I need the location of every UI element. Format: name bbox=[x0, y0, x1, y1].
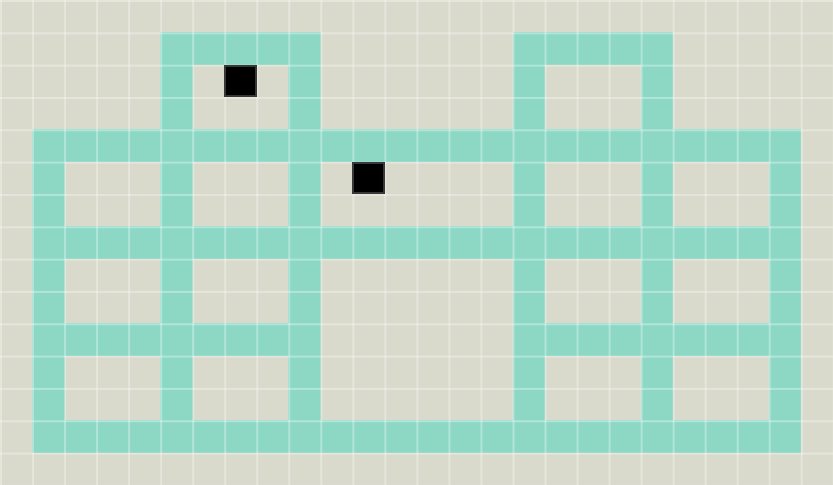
wall-tile bbox=[32, 129, 65, 162]
wall-tile bbox=[32, 259, 65, 292]
wall-tile bbox=[192, 32, 225, 65]
wall-tile bbox=[513, 129, 546, 162]
wall-tile bbox=[737, 323, 770, 356]
wall-tile bbox=[128, 323, 161, 356]
wall-tile bbox=[513, 259, 546, 292]
wall-tile bbox=[192, 226, 225, 259]
wall-tile bbox=[545, 323, 578, 356]
wall-tile bbox=[160, 291, 193, 324]
wall-tile bbox=[32, 420, 65, 453]
wall-tile bbox=[513, 97, 546, 130]
wall-tile bbox=[160, 420, 193, 453]
wall-tile bbox=[32, 226, 65, 259]
wall-tile bbox=[513, 420, 546, 453]
wall-tile bbox=[320, 420, 353, 453]
wall-tile bbox=[320, 226, 353, 259]
wall-tile bbox=[224, 323, 257, 356]
wall-tile bbox=[256, 32, 289, 65]
wall-tile bbox=[737, 129, 770, 162]
wall-tile bbox=[192, 420, 225, 453]
wall-tile bbox=[705, 226, 738, 259]
wall-tile bbox=[769, 291, 802, 324]
wall-tile bbox=[96, 226, 129, 259]
wall-tile bbox=[160, 226, 193, 259]
wall-tile bbox=[160, 129, 193, 162]
wall-tile bbox=[673, 226, 706, 259]
wall-tile bbox=[673, 129, 706, 162]
wall-tile bbox=[128, 129, 161, 162]
wall-tile bbox=[513, 194, 546, 227]
wall-tile bbox=[288, 97, 321, 130]
wall-tile bbox=[513, 388, 546, 421]
wall-tile bbox=[352, 420, 385, 453]
wall-tile bbox=[288, 194, 321, 227]
wall-tile bbox=[384, 226, 417, 259]
wall-tile bbox=[513, 32, 546, 65]
wall-tile bbox=[352, 129, 385, 162]
wall-tile bbox=[545, 420, 578, 453]
wall-tile bbox=[641, 226, 674, 259]
wall-tile bbox=[160, 32, 193, 65]
wall-tile bbox=[224, 129, 257, 162]
wall-tile bbox=[609, 129, 642, 162]
wall-tile bbox=[513, 226, 546, 259]
wall-tile bbox=[769, 323, 802, 356]
wall-tile bbox=[160, 65, 193, 98]
wall-tile bbox=[417, 226, 450, 259]
wall-tile bbox=[641, 259, 674, 292]
wall-tile bbox=[320, 129, 353, 162]
wall-tile bbox=[256, 420, 289, 453]
wall-tile bbox=[769, 388, 802, 421]
wall-tile bbox=[128, 420, 161, 453]
wall-tile bbox=[288, 65, 321, 98]
wall-tile bbox=[256, 323, 289, 356]
wall-tile bbox=[641, 388, 674, 421]
wall-tile bbox=[288, 129, 321, 162]
wall-tile bbox=[577, 420, 610, 453]
wall-tile bbox=[288, 388, 321, 421]
wall-tile bbox=[288, 356, 321, 389]
wall-tile bbox=[449, 226, 482, 259]
wall-tile bbox=[32, 323, 65, 356]
wall-tile bbox=[160, 97, 193, 130]
wall-tile bbox=[769, 356, 802, 389]
game-board bbox=[0, 0, 833, 485]
wall-tile bbox=[64, 420, 97, 453]
wall-tile bbox=[32, 162, 65, 195]
wall-tile bbox=[513, 356, 546, 389]
wall-tile bbox=[192, 323, 225, 356]
wall-tile bbox=[481, 226, 514, 259]
wall-tile bbox=[769, 129, 802, 162]
wall-tile bbox=[32, 291, 65, 324]
wall-tile bbox=[224, 420, 257, 453]
wall-tile bbox=[32, 388, 65, 421]
wall-tile bbox=[705, 420, 738, 453]
wall-tile bbox=[641, 65, 674, 98]
wall-tile bbox=[160, 259, 193, 292]
wall-tile bbox=[705, 323, 738, 356]
wall-tile bbox=[641, 420, 674, 453]
wall-tile bbox=[609, 32, 642, 65]
wall-tile bbox=[449, 129, 482, 162]
wall-tile bbox=[352, 226, 385, 259]
wall-tile bbox=[449, 420, 482, 453]
wall-tile bbox=[609, 323, 642, 356]
wall-tile bbox=[545, 226, 578, 259]
wall-tile bbox=[769, 420, 802, 453]
wall-tile bbox=[256, 129, 289, 162]
wall-tile bbox=[545, 129, 578, 162]
black-block[interactable] bbox=[352, 162, 385, 195]
wall-tile bbox=[673, 420, 706, 453]
wall-tile bbox=[641, 323, 674, 356]
wall-tile bbox=[769, 194, 802, 227]
wall-tile bbox=[96, 323, 129, 356]
wall-tile bbox=[160, 356, 193, 389]
wall-tile bbox=[769, 162, 802, 195]
wall-tile bbox=[288, 291, 321, 324]
wall-tile bbox=[577, 323, 610, 356]
wall-tile bbox=[641, 32, 674, 65]
wall-tile bbox=[513, 291, 546, 324]
wall-tile bbox=[513, 323, 546, 356]
wall-tile bbox=[641, 291, 674, 324]
wall-tile bbox=[160, 162, 193, 195]
wall-tile bbox=[384, 420, 417, 453]
wall-tile bbox=[641, 129, 674, 162]
wall-tile bbox=[641, 162, 674, 195]
wall-tile bbox=[160, 388, 193, 421]
wall-tile bbox=[481, 420, 514, 453]
wall-tile bbox=[641, 194, 674, 227]
wall-tile bbox=[160, 194, 193, 227]
wall-tile bbox=[224, 226, 257, 259]
wall-tile bbox=[32, 194, 65, 227]
wall-tile bbox=[609, 226, 642, 259]
wall-tile bbox=[417, 420, 450, 453]
wall-tile bbox=[288, 323, 321, 356]
wall-tile bbox=[64, 129, 97, 162]
wall-tile bbox=[577, 226, 610, 259]
wall-tile bbox=[577, 32, 610, 65]
wall-tile bbox=[705, 129, 738, 162]
wall-tile bbox=[224, 32, 257, 65]
wall-tile bbox=[513, 162, 546, 195]
wall-tile bbox=[64, 323, 97, 356]
wall-tile bbox=[160, 323, 193, 356]
wall-tile bbox=[513, 65, 546, 98]
wall-tile bbox=[737, 420, 770, 453]
wall-tile bbox=[96, 420, 129, 453]
wall-tile bbox=[288, 162, 321, 195]
wall-tile bbox=[417, 129, 450, 162]
wall-tile bbox=[769, 259, 802, 292]
black-block[interactable] bbox=[224, 65, 257, 98]
wall-tile bbox=[192, 129, 225, 162]
wall-tile bbox=[288, 226, 321, 259]
wall-tile bbox=[288, 259, 321, 292]
wall-tile bbox=[545, 32, 578, 65]
wall-tile bbox=[577, 129, 610, 162]
wall-tile bbox=[769, 226, 802, 259]
wall-tile bbox=[641, 97, 674, 130]
wall-tile bbox=[128, 226, 161, 259]
wall-tile bbox=[288, 32, 321, 65]
wall-tile bbox=[32, 356, 65, 389]
wall-tile bbox=[384, 129, 417, 162]
wall-tile bbox=[288, 420, 321, 453]
wall-tile bbox=[96, 129, 129, 162]
wall-tile bbox=[256, 226, 289, 259]
wall-tile bbox=[641, 356, 674, 389]
wall-tile bbox=[673, 323, 706, 356]
wall-tile bbox=[481, 129, 514, 162]
wall-tile bbox=[737, 226, 770, 259]
wall-tile bbox=[64, 226, 97, 259]
wall-tile bbox=[609, 420, 642, 453]
